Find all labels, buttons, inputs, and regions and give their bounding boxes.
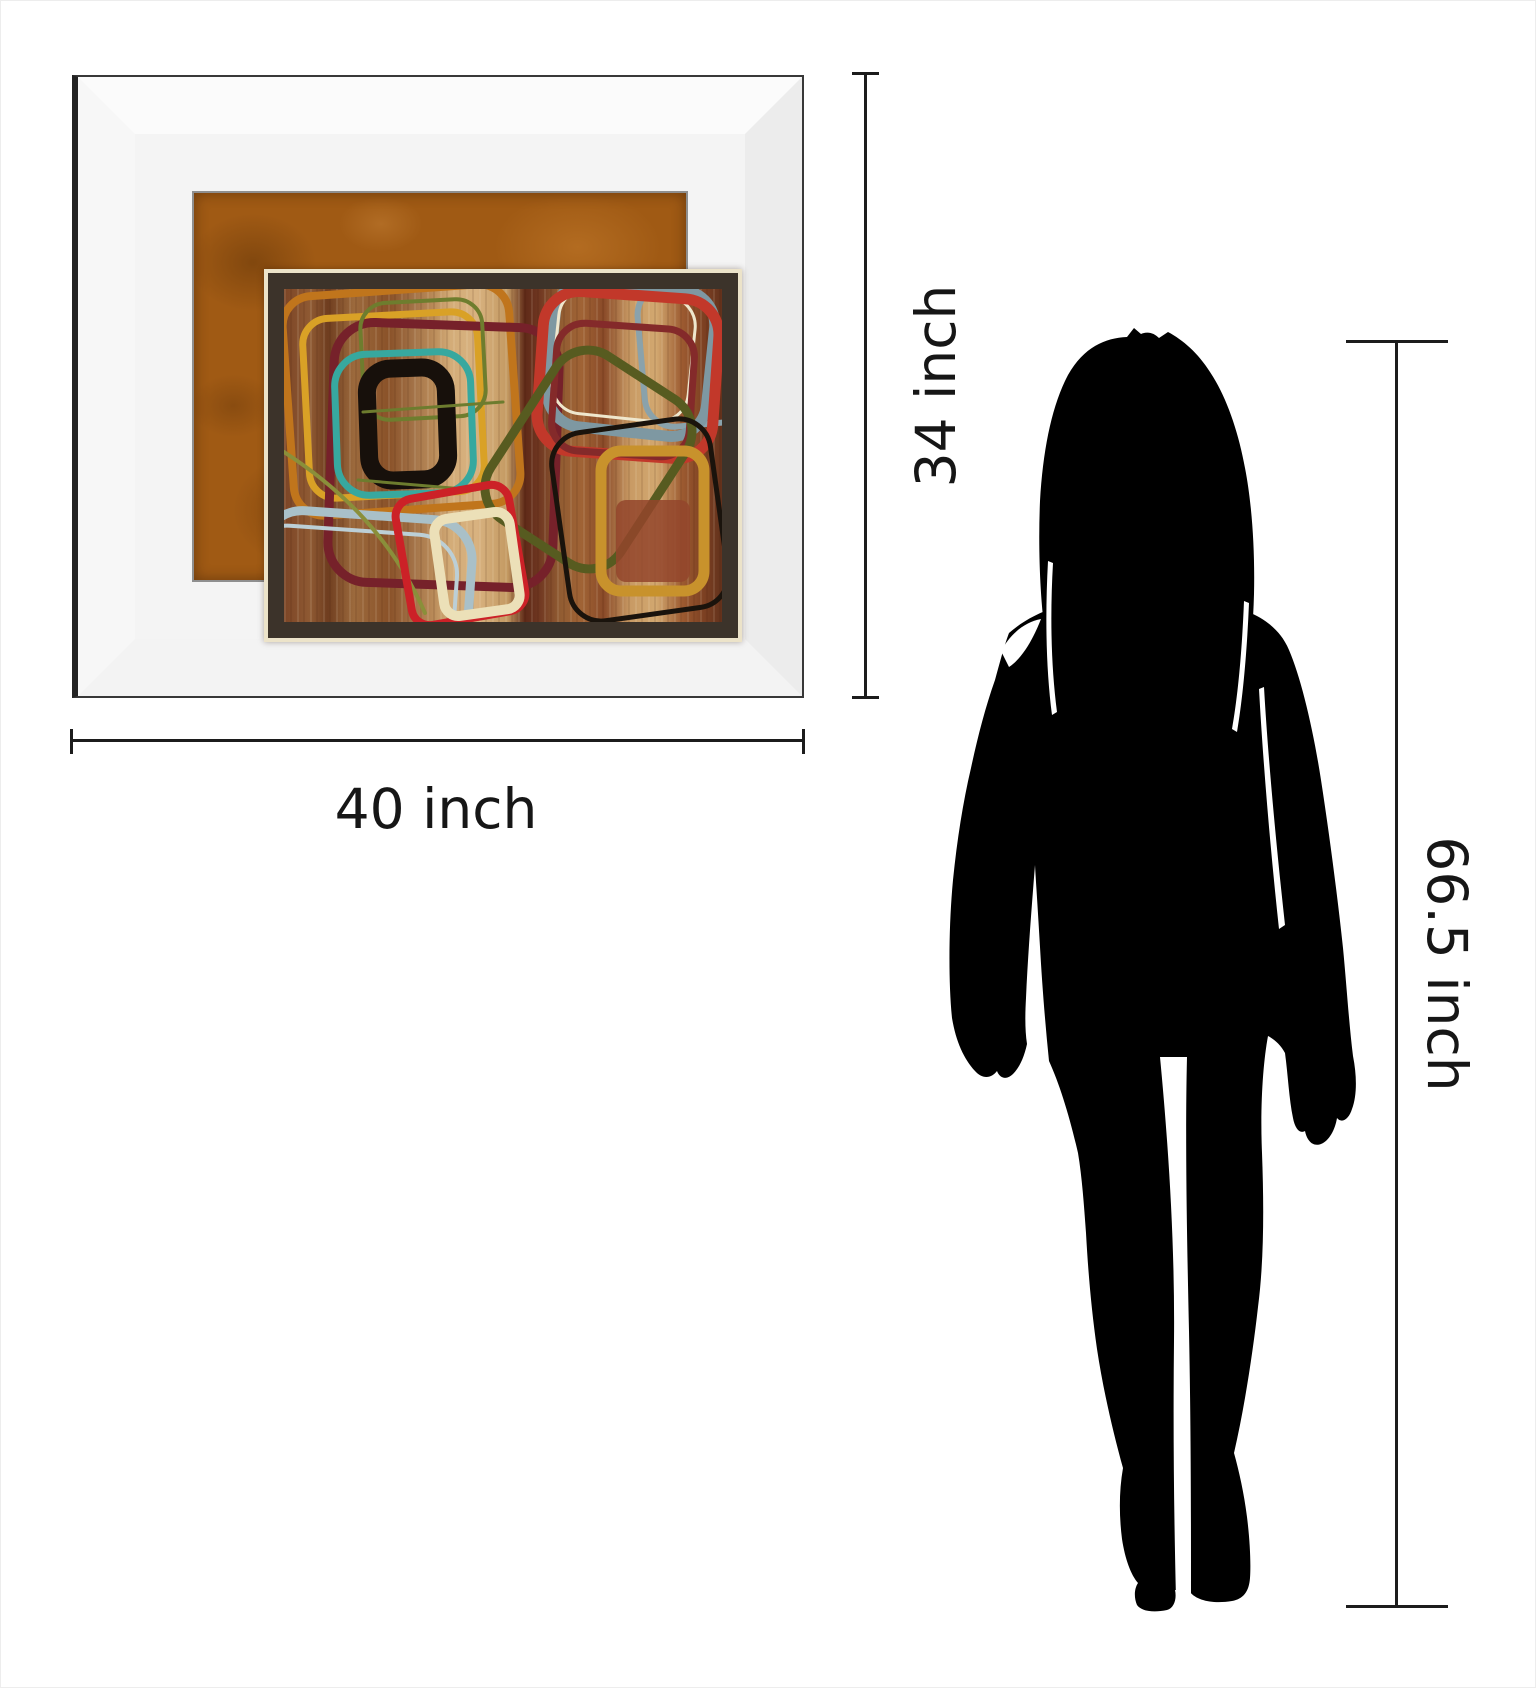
art-height-dimension-line bbox=[864, 73, 867, 699]
mirror-bevel-frame bbox=[78, 77, 802, 696]
art-width-right-tick bbox=[802, 729, 805, 754]
person-height-dimension-line bbox=[1395, 341, 1398, 1608]
art-width-label: 40 inch bbox=[326, 781, 546, 837]
abstract-shapes bbox=[284, 289, 722, 622]
woman-silhouette bbox=[941, 326, 1361, 1616]
art-height-bottom-tick bbox=[852, 696, 879, 699]
art-width-left-tick bbox=[70, 729, 73, 754]
rust-matte bbox=[192, 191, 688, 582]
person-height-top-tick bbox=[1346, 340, 1448, 343]
abstract-print bbox=[284, 289, 722, 622]
product-size-diagram: 34 inch 40 inch 66.5 inch bbox=[0, 0, 1536, 1688]
art-width-dimension-line bbox=[71, 739, 805, 742]
art-height-top-tick bbox=[852, 72, 879, 75]
person-height-bottom-tick bbox=[1346, 1605, 1448, 1608]
framed-artwork bbox=[72, 75, 804, 698]
print-mat-border bbox=[264, 269, 742, 642]
person-height-label: 66.5 inch bbox=[1419, 824, 1475, 1104]
